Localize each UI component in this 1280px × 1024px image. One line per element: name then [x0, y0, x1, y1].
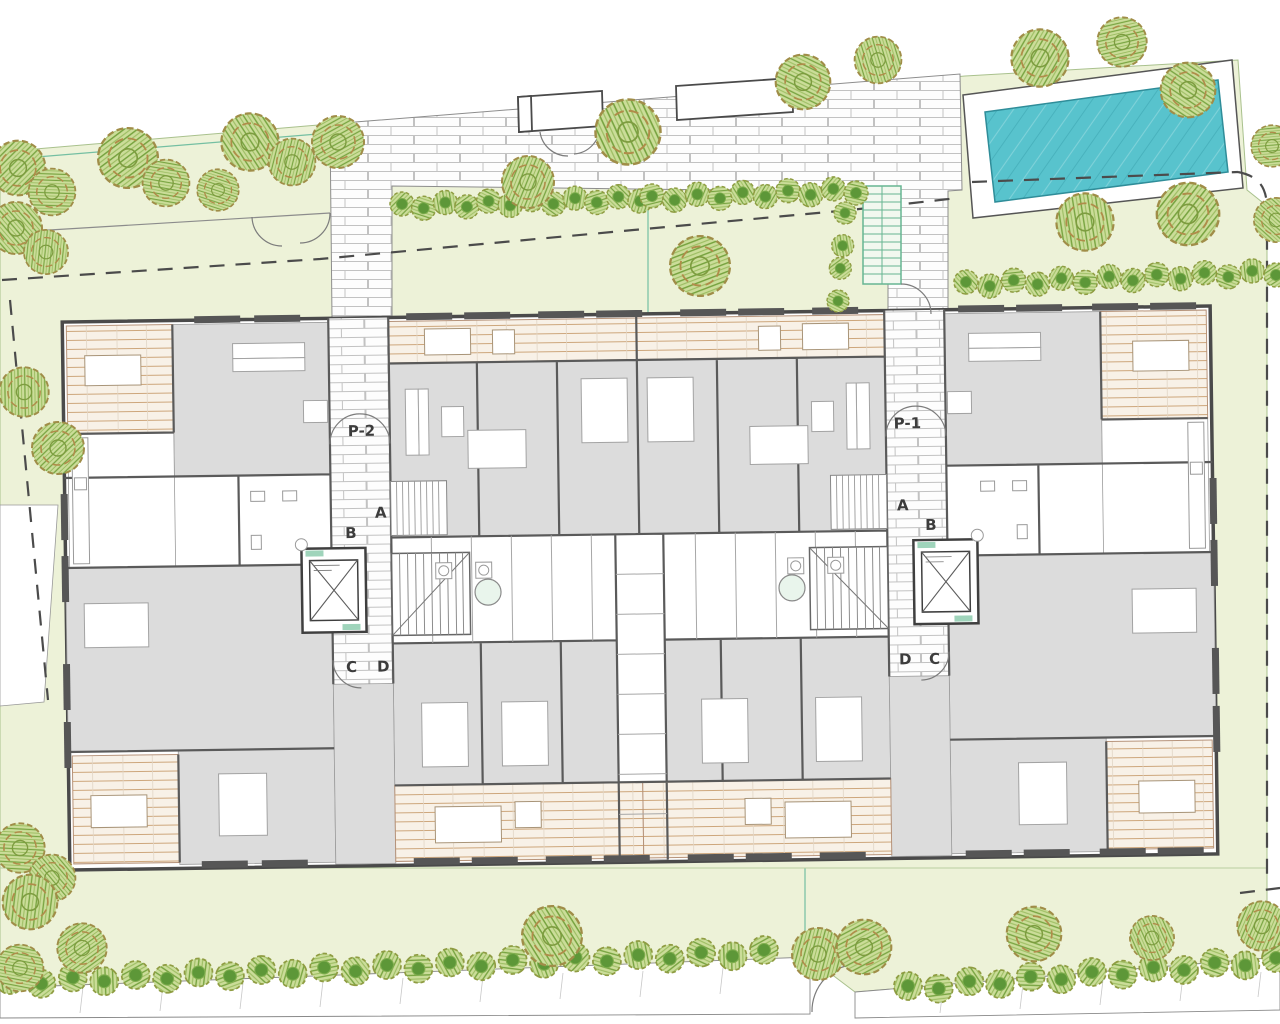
- stair-letter-d-right: D: [899, 650, 912, 668]
- stair-letter-b-left: B: [345, 524, 357, 542]
- stair-letter-d-left: D: [377, 658, 390, 676]
- stair-letter-a-left: A: [375, 504, 387, 522]
- entrance-label-p1: P-1: [894, 414, 922, 432]
- stair-letter-a-right: A: [897, 496, 909, 514]
- bush-icon: [390, 192, 414, 216]
- elevator-right-icon: [913, 539, 978, 624]
- tree-icon: [1243, 117, 1280, 176]
- site-plan-drawing: P-2 A B C D P-1 A B C D: [0, 0, 1280, 1024]
- building: P-2 A B C D P-1 A B C D: [58, 302, 1222, 870]
- entrance-label-p2: P-2: [348, 422, 376, 440]
- stair-letter-b-right: B: [925, 516, 937, 534]
- patio-circle-right: [779, 575, 805, 601]
- bush-icon: [606, 185, 630, 209]
- stair-letter-c-right: C: [929, 650, 940, 668]
- stair-letter-c-left: C: [346, 658, 357, 676]
- floor-plan-canvas: P-2 A B C D P-1 A B C D: [0, 0, 1280, 1024]
- elevator-left-icon: [301, 548, 366, 633]
- patio-circle-left: [475, 579, 501, 605]
